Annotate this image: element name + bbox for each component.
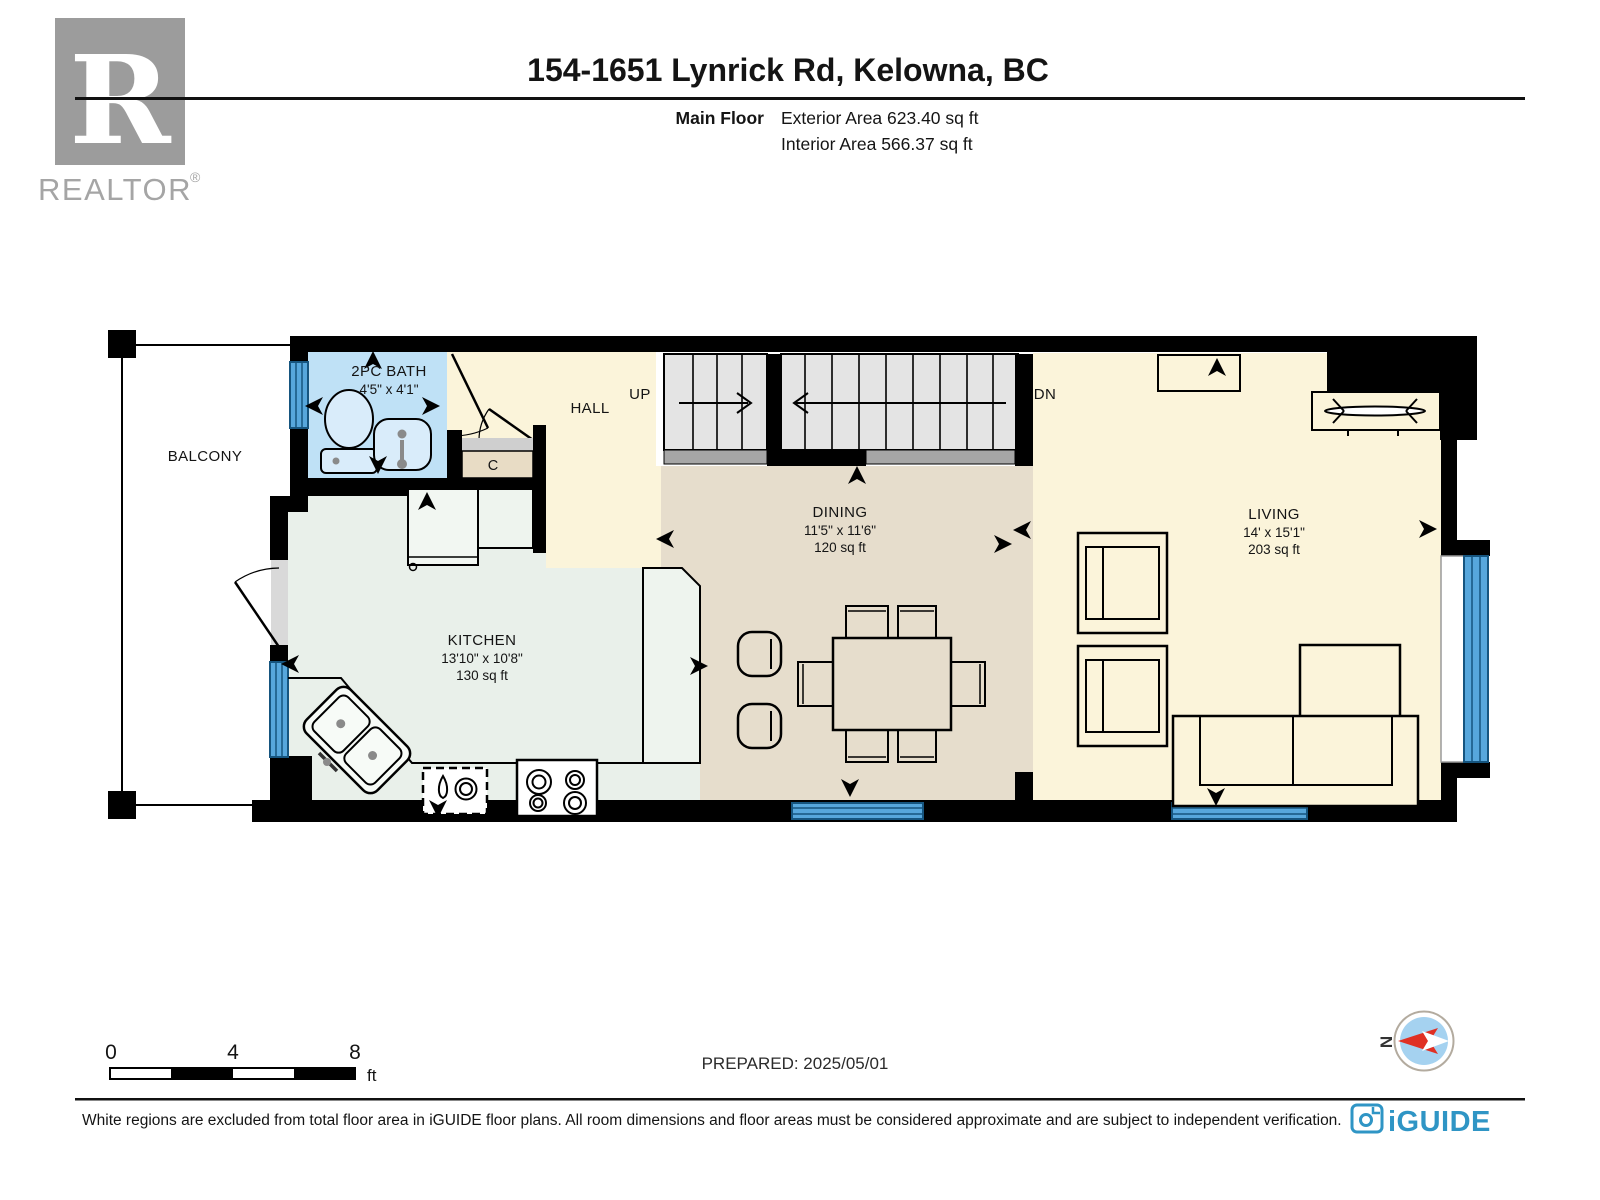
dining-area: 120 sq ft — [814, 540, 866, 555]
balcony-door-gap — [271, 560, 288, 645]
footer: White regions are excluded from total fl… — [75, 1098, 1525, 1138]
compass: N — [1377, 1012, 1454, 1071]
toilet-icon — [321, 390, 377, 473]
dining-table — [833, 638, 951, 730]
kitchen-dims: 13'10" x 10'8" — [441, 651, 523, 666]
exterior-area: Exterior Area 623.40 sq ft — [781, 108, 979, 128]
header-divider — [75, 97, 1525, 100]
iguide-wordmark: iGUIDE — [1388, 1106, 1491, 1138]
stairs-divider-wall — [767, 354, 781, 465]
floor-name: Main Floor — [676, 108, 765, 128]
scale-tick-0: 0 — [105, 1041, 117, 1064]
dining-dims: 11'5" x 11'6" — [804, 523, 876, 538]
peninsula-counter — [643, 568, 700, 763]
kitchen-window — [270, 662, 288, 757]
bar-stool — [738, 704, 781, 748]
compass-north-label: N — [1377, 1036, 1396, 1048]
living-window-right — [1441, 556, 1488, 762]
armchair — [1078, 533, 1167, 633]
hall-label: HALL — [570, 400, 609, 417]
iguide-camera-icon — [1352, 1105, 1382, 1132]
balcony-label: BALCONY — [168, 448, 243, 465]
dining-label: DINING — [813, 504, 868, 521]
bath-dims: 4'5" x 4'1" — [359, 382, 418, 397]
wall-fixture — [1158, 355, 1240, 391]
footer-divider — [75, 1098, 1525, 1101]
tv-stand — [1312, 392, 1440, 436]
coffee-table — [1300, 645, 1400, 717]
scale-bar: 0 4 8 ft — [105, 1041, 377, 1085]
floor-plan-canvas: R REALTOR ® 154-1651 Lynrick Rd, Kelowna… — [0, 0, 1600, 1200]
realtor-logo-text: REALTOR — [38, 172, 192, 207]
armchair — [1078, 646, 1167, 746]
stove-icon — [517, 760, 597, 816]
realtor-logo-reg-icon: ® — [190, 169, 201, 185]
scale-unit: ft — [367, 1066, 377, 1085]
stairs-up-label: UP — [629, 386, 651, 403]
stairs-right-wall — [1015, 354, 1033, 466]
upper-counter — [478, 489, 533, 548]
under-stair-wall — [767, 450, 866, 466]
living-label: LIVING — [1248, 506, 1300, 523]
bath-window — [290, 362, 308, 428]
balcony — [108, 330, 290, 819]
living-area: 203 sq ft — [1248, 542, 1300, 557]
dining-window — [792, 803, 923, 819]
disclaimer: White regions are excluded from total fl… — [82, 1112, 1342, 1129]
prepared-date: PREPARED: 2025/05/01 — [702, 1054, 889, 1073]
iguide-logo: iGUIDE — [1352, 1105, 1491, 1138]
stairs-landing-right — [866, 450, 1015, 464]
bath-label: 2PC BATH — [351, 363, 426, 380]
staircase — [664, 354, 1033, 466]
kitchen-area: 130 sq ft — [456, 668, 508, 683]
page-title: 154-1651 Lynrick Rd, Kelowna, BC — [527, 52, 1049, 88]
fridge-icon — [408, 489, 478, 571]
floor-plan-page: R REALTOR ® 154-1651 Lynrick Rd, Kelowna… — [0, 0, 1600, 1200]
scale-tick-4: 4 — [227, 1041, 239, 1064]
stairs-down-label: DN — [1034, 386, 1056, 403]
scale-tick-8: 8 — [349, 1041, 361, 1064]
living-dims: 14' x 15'1" — [1243, 525, 1305, 540]
interior-area: Interior Area 566.37 sq ft — [781, 134, 973, 154]
kitchen-label: KITCHEN — [448, 632, 517, 649]
header: R REALTOR ® 154-1651 Lynrick Rd, Kelowna… — [38, 18, 1525, 207]
realtor-logo: R REALTOR ® — [38, 18, 201, 207]
closet-threshold — [462, 438, 533, 451]
stairs-landing-left — [664, 450, 767, 464]
bar-stool — [738, 632, 781, 676]
closet-label: C — [488, 458, 498, 474]
